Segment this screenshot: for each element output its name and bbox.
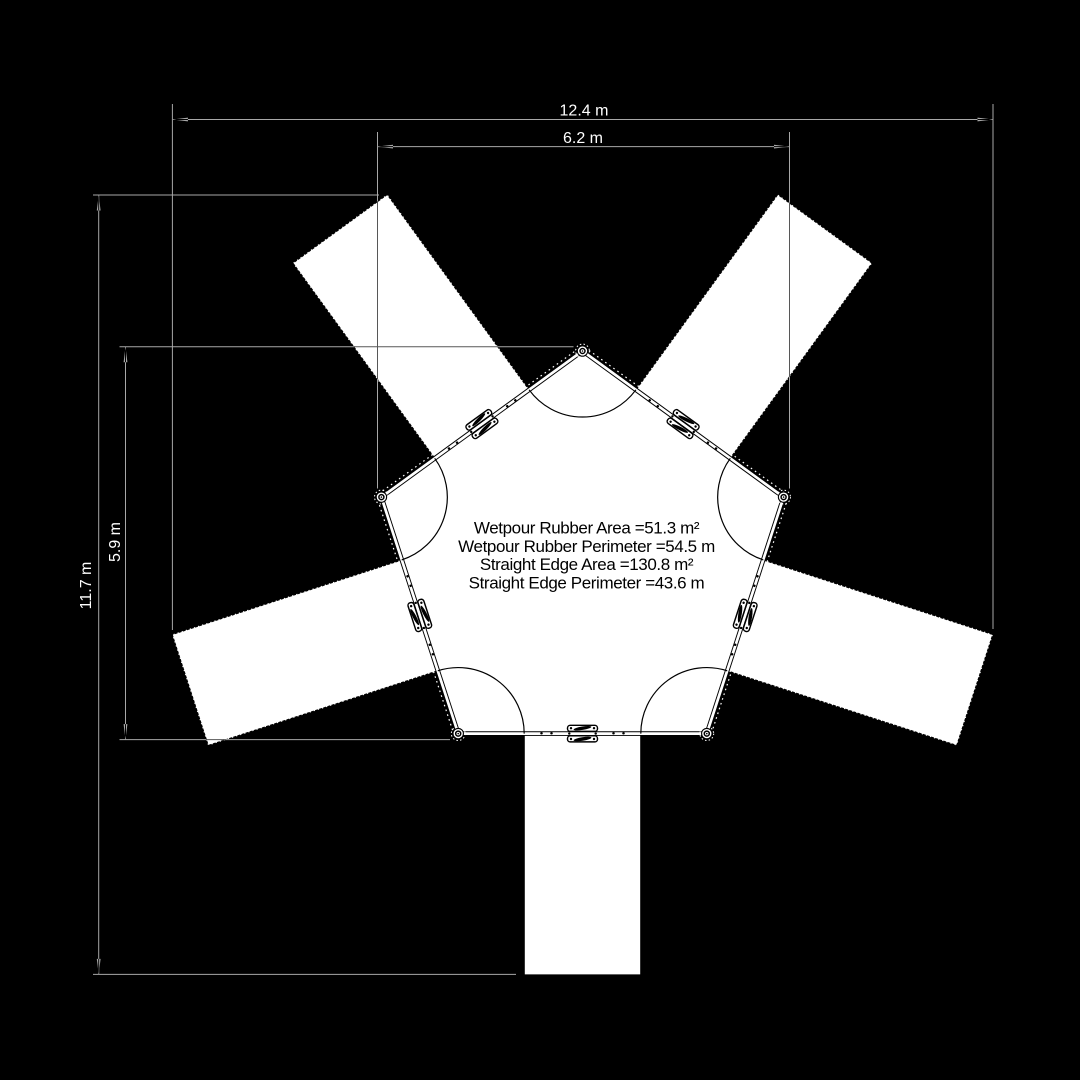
svg-text:11.7 m: 11.7 m (78, 562, 95, 610)
svg-text:Straight Edge Area =130.8 m²: Straight Edge Area =130.8 m² (480, 555, 694, 574)
svg-text:12.4 m: 12.4 m (560, 103, 609, 120)
svg-text:Straight Edge Perimeter =43.6: Straight Edge Perimeter =43.6 m (469, 573, 705, 592)
svg-text:6.2 m: 6.2 m (563, 130, 603, 147)
svg-text:Wetpour Rubber Area =51.3 m²: Wetpour Rubber Area =51.3 m² (474, 519, 700, 538)
svg-text:Wetpour Rubber Perimeter =54.5: Wetpour Rubber Perimeter =54.5 m (458, 537, 715, 556)
svg-text:5.9 m: 5.9 m (107, 522, 124, 562)
